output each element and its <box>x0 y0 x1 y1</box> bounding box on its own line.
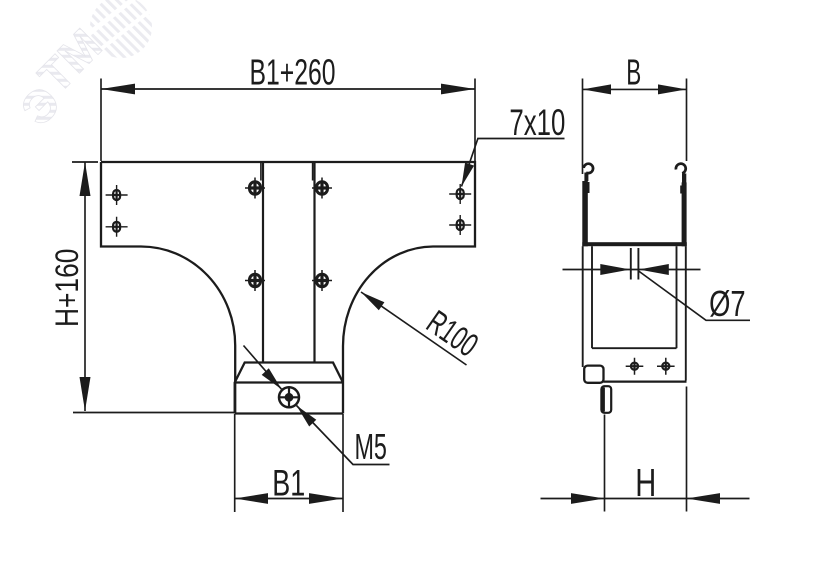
svg-text:7x10: 7x10 <box>509 102 565 143</box>
svg-text:M5: M5 <box>354 426 387 467</box>
svg-text:H: H <box>635 462 656 505</box>
svg-text:H+160: H+160 <box>49 249 85 328</box>
svg-text:B: B <box>626 52 641 93</box>
svg-text:B1: B1 <box>272 461 305 503</box>
svg-text:Ø7: Ø7 <box>709 283 746 324</box>
svg-text:R100: R100 <box>420 304 485 365</box>
svg-text:B1+260: B1+260 <box>250 52 336 93</box>
